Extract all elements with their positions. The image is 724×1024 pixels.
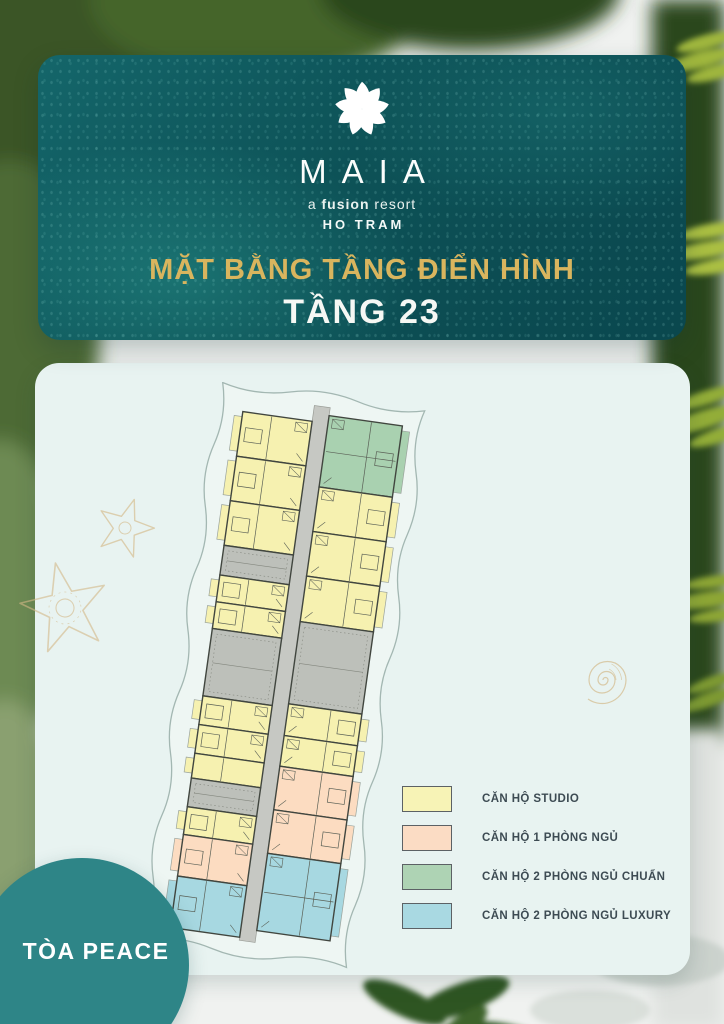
legend-swatch [402, 903, 452, 929]
floorplan-drawing [135, 382, 445, 982]
legend-row: CĂN HỘ STUDIO [402, 786, 671, 812]
legend-label: CĂN HỘ 2 PHÒNG NGỦ LUXURY [482, 910, 671, 922]
tower-badge-label: TÒA PEACE [23, 938, 170, 965]
legend-swatch [402, 786, 452, 812]
brand-location: HO TRAM [38, 217, 686, 232]
page-subtitle: TẦNG 23 [38, 293, 686, 332]
legend-label: CĂN HỘ 1 PHÒNG NGỦ [482, 832, 618, 844]
legend-swatch [402, 864, 452, 890]
brand-name: MAIA [38, 153, 686, 191]
page-title: MẶT BẰNG TẦNG ĐIỂN HÌNH [38, 254, 686, 287]
legend-row: CĂN HỘ 2 PHÒNG NGỦ LUXURY [402, 903, 671, 929]
flower-petals [334, 82, 390, 137]
legend-row: CĂN HỘ 2 PHÒNG NGỦ CHUẨN [402, 864, 671, 890]
nautilus-shell-icon [555, 638, 645, 718]
maia-flower-logo-icon [38, 77, 686, 141]
starfish-large-icon [15, 548, 125, 668]
legend-label: CĂN HỘ 2 PHÒNG NGỦ CHUẨN [482, 871, 665, 883]
legend-label: CĂN HỘ STUDIO [482, 793, 579, 805]
poster-page: MAIA a fusion resort HO TRAM MẶT BẰNG TẦ… [0, 0, 724, 1024]
header-card: MAIA a fusion resort HO TRAM MẶT BẰNG TẦ… [38, 55, 686, 340]
legend-row: CĂN HỘ 1 PHÒNG NGỦ [402, 825, 671, 851]
legend: CĂN HỘ STUDIOCĂN HỘ 1 PHÒNG NGỦCĂN HỘ 2 … [402, 786, 671, 929]
legend-swatch [402, 825, 452, 851]
brand-tagline: a fusion resort [38, 196, 686, 212]
